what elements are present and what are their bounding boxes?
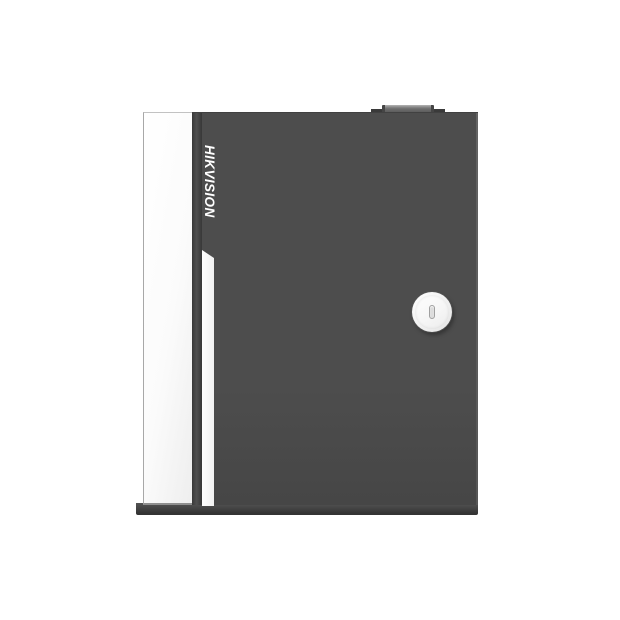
access-controller-enclosure: HIKVISION [143, 112, 478, 510]
product-photo-canvas: HIKVISION [0, 0, 620, 620]
door-left-fold [192, 113, 202, 505]
enclosure-door: HIKVISION [192, 112, 478, 505]
cam-lock [412, 292, 452, 332]
hikvision-logo: HIKVISION [202, 145, 216, 231]
door-accent-stripe [202, 250, 214, 506]
enclosure-side-panel [143, 112, 192, 505]
top-hinge-knob [382, 105, 434, 112]
cam-lock-face [415, 295, 449, 329]
keyhole-slot-icon [429, 305, 435, 319]
